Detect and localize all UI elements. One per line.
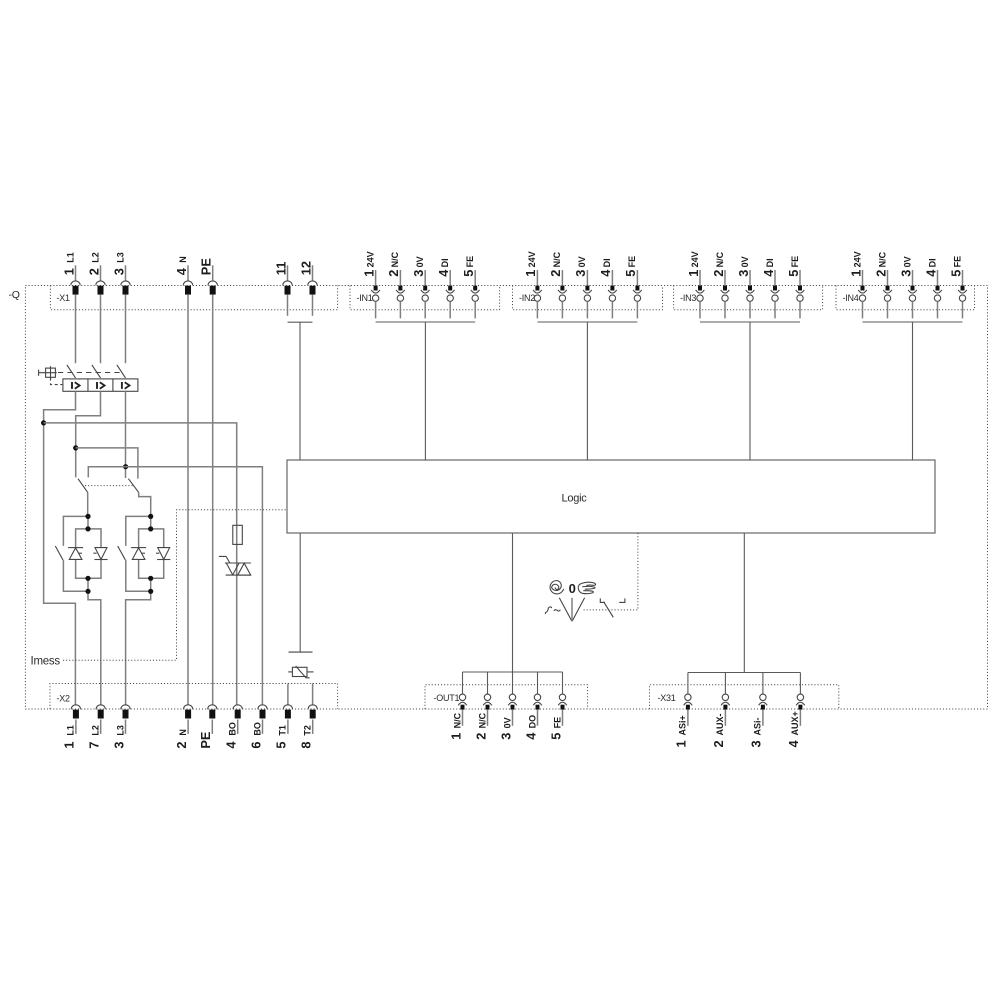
svg-text:-X2: -X2 bbox=[57, 694, 71, 704]
svg-text:PE: PE bbox=[198, 731, 213, 749]
svg-text:1: 1 bbox=[61, 268, 76, 275]
svg-text:AUX-: AUX- bbox=[715, 713, 725, 735]
svg-text:L1: L1 bbox=[66, 725, 76, 736]
svg-text:N/C: N/C bbox=[477, 712, 487, 728]
svg-text:-X31: -X31 bbox=[658, 693, 676, 703]
svg-text:4: 4 bbox=[224, 741, 239, 749]
svg-text:24V: 24V bbox=[365, 251, 375, 267]
svg-text:5: 5 bbox=[786, 270, 801, 277]
svg-text:N/C: N/C bbox=[390, 251, 400, 267]
svg-text:0V: 0V bbox=[740, 256, 750, 267]
svg-text:N/C: N/C bbox=[452, 712, 462, 728]
svg-text:1: 1 bbox=[62, 741, 77, 748]
svg-text:N/C: N/C bbox=[715, 251, 725, 267]
svg-text:-X1: -X1 bbox=[57, 293, 71, 303]
svg-text:FE: FE bbox=[952, 256, 962, 268]
svg-text:3: 3 bbox=[111, 741, 126, 748]
svg-text:0V: 0V bbox=[415, 256, 425, 267]
svg-text:1: 1 bbox=[686, 270, 701, 277]
svg-text:L3: L3 bbox=[115, 725, 125, 736]
svg-text:0: 0 bbox=[569, 581, 576, 596]
svg-text:T1: T1 bbox=[278, 725, 288, 736]
svg-text:BO: BO bbox=[252, 722, 262, 736]
svg-text:3: 3 bbox=[111, 268, 126, 275]
svg-text:5: 5 bbox=[274, 741, 289, 748]
svg-text:DI: DI bbox=[440, 258, 450, 267]
svg-text:L2: L2 bbox=[91, 725, 101, 736]
svg-text:2: 2 bbox=[711, 740, 726, 747]
svg-text:5: 5 bbox=[948, 270, 963, 277]
svg-text:L1: L1 bbox=[65, 252, 75, 263]
svg-text:DI: DI bbox=[927, 258, 937, 267]
svg-text:2: 2 bbox=[86, 268, 101, 275]
svg-text:-IN4: -IN4 bbox=[843, 293, 859, 303]
svg-text:Logic: Logic bbox=[562, 493, 588, 505]
svg-text:N/C: N/C bbox=[877, 251, 887, 267]
svg-text:3: 3 bbox=[736, 270, 751, 277]
svg-text:1: 1 bbox=[361, 270, 376, 277]
svg-text:24V: 24V bbox=[852, 251, 862, 267]
svg-text:1: 1 bbox=[848, 270, 863, 277]
svg-text:2: 2 bbox=[873, 270, 888, 277]
svg-text:5: 5 bbox=[623, 270, 638, 277]
svg-text:DI: DI bbox=[602, 258, 612, 267]
svg-text:N: N bbox=[178, 729, 188, 736]
svg-text:L3: L3 bbox=[115, 252, 125, 263]
svg-text:3: 3 bbox=[573, 270, 588, 277]
svg-text:4: 4 bbox=[786, 740, 801, 748]
svg-text:1: 1 bbox=[448, 733, 463, 740]
svg-text:8: 8 bbox=[299, 741, 314, 748]
svg-text:5: 5 bbox=[461, 270, 476, 277]
svg-text:FE: FE bbox=[790, 256, 800, 268]
svg-text:1: 1 bbox=[674, 740, 689, 747]
svg-text:12: 12 bbox=[298, 261, 313, 275]
svg-text:24V: 24V bbox=[527, 251, 537, 267]
svg-text:3: 3 bbox=[498, 733, 513, 740]
svg-text:4: 4 bbox=[761, 269, 776, 277]
svg-text:1: 1 bbox=[523, 270, 538, 277]
svg-text:ASi-: ASi- bbox=[753, 717, 763, 735]
svg-text:BO: BO bbox=[228, 722, 238, 736]
svg-text:3: 3 bbox=[411, 270, 426, 277]
svg-text:24V: 24V bbox=[690, 251, 700, 267]
svg-text:4: 4 bbox=[598, 269, 613, 277]
svg-text:DO: DO bbox=[527, 715, 537, 729]
svg-text:0V: 0V bbox=[502, 717, 512, 728]
svg-text:N/C: N/C bbox=[552, 251, 562, 267]
svg-text:AUX+: AUX+ bbox=[790, 711, 800, 735]
svg-text:FE: FE bbox=[627, 256, 637, 268]
svg-text:2: 2 bbox=[174, 741, 189, 748]
svg-text:PE: PE bbox=[199, 258, 214, 276]
svg-text:L2: L2 bbox=[90, 252, 100, 263]
svg-text:-IN3: -IN3 bbox=[680, 293, 696, 303]
svg-text:4: 4 bbox=[523, 732, 538, 740]
svg-text:3: 3 bbox=[898, 270, 913, 277]
svg-text:T2: T2 bbox=[303, 725, 313, 736]
svg-text:4: 4 bbox=[174, 267, 189, 275]
svg-text:11: 11 bbox=[273, 262, 288, 276]
svg-text:-IN2: -IN2 bbox=[519, 293, 535, 303]
svg-text:2: 2 bbox=[386, 270, 401, 277]
svg-text:ASi+: ASi+ bbox=[678, 715, 688, 735]
svg-text:-IN1: -IN1 bbox=[357, 293, 373, 303]
svg-text:5: 5 bbox=[548, 733, 563, 740]
svg-text:N: N bbox=[178, 256, 188, 263]
svg-text:3: 3 bbox=[749, 740, 764, 747]
svg-text:FE: FE bbox=[465, 256, 475, 268]
svg-text:0V: 0V bbox=[902, 256, 912, 267]
svg-text:2: 2 bbox=[711, 270, 726, 277]
svg-text:7: 7 bbox=[87, 741, 102, 748]
svg-text:4: 4 bbox=[923, 269, 938, 277]
svg-text:2: 2 bbox=[473, 733, 488, 740]
svg-text:FE: FE bbox=[552, 717, 562, 729]
svg-text:-Q: -Q bbox=[9, 289, 20, 301]
svg-text:6: 6 bbox=[248, 741, 263, 748]
svg-text:0V: 0V bbox=[577, 256, 587, 267]
svg-text:DI: DI bbox=[765, 258, 775, 267]
svg-text:-OUT1: -OUT1 bbox=[434, 693, 460, 703]
svg-text:4: 4 bbox=[436, 269, 451, 277]
svg-text:Imess: Imess bbox=[31, 656, 61, 668]
svg-text:2: 2 bbox=[548, 270, 563, 277]
